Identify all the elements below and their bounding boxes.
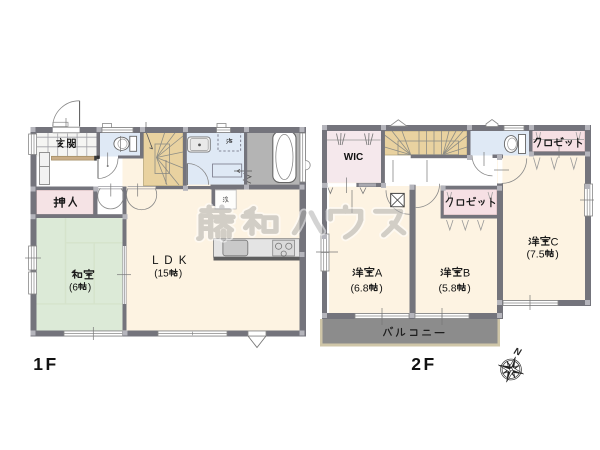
svg-text:): ) — [467, 282, 471, 294]
svg-text:L D K: L D K — [152, 255, 188, 267]
svg-text:B: B — [463, 267, 470, 279]
svg-text:(15: (15 — [154, 269, 169, 280]
svg-text:): ) — [555, 248, 559, 260]
svg-text:2F: 2F — [411, 354, 436, 374]
svg-text:(5.8: (5.8 — [438, 282, 456, 294]
svg-text:): ) — [379, 282, 383, 294]
svg-text:WIC: WIC — [344, 152, 363, 163]
svg-text:(6.8: (6.8 — [350, 282, 368, 294]
svg-text:(7.5: (7.5 — [526, 248, 544, 260]
svg-text:C: C — [551, 236, 559, 248]
svg-text:): ) — [179, 269, 182, 280]
svg-text:A: A — [375, 267, 383, 279]
svg-text:1F: 1F — [33, 354, 58, 374]
svg-text:(6: (6 — [69, 282, 78, 293]
svg-text:): ) — [88, 282, 91, 293]
